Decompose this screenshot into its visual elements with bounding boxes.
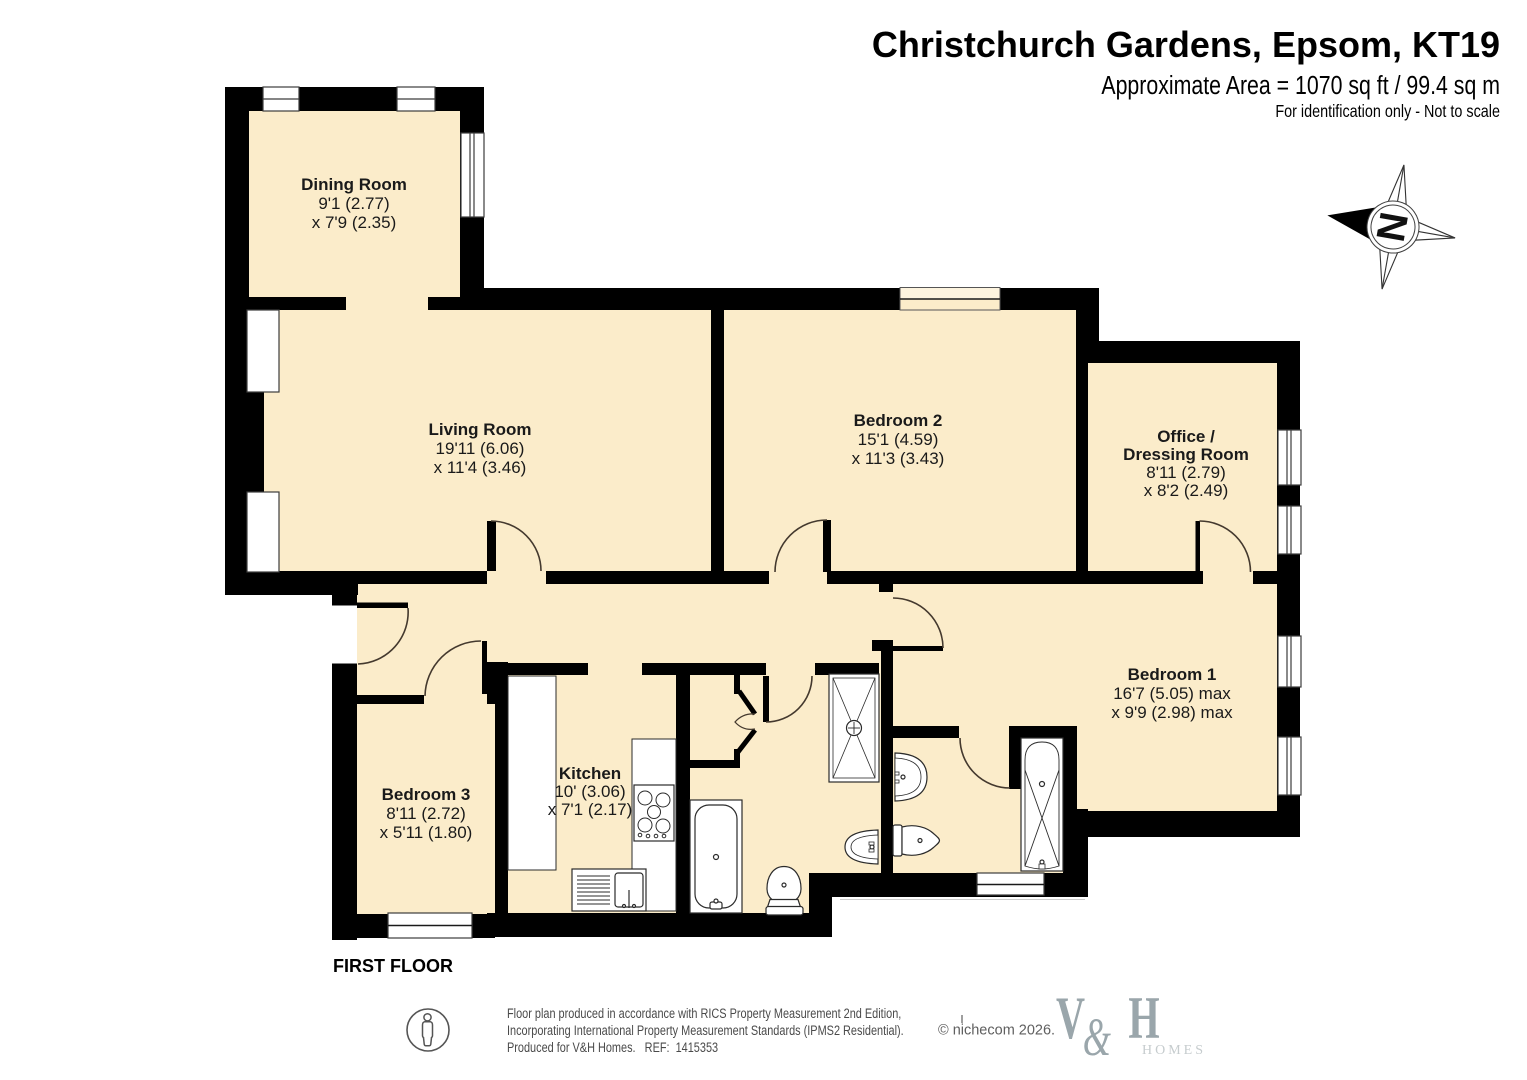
svg-text:Bedroom 3: Bedroom 3 — [382, 785, 471, 804]
svg-text:Bedroom 2: Bedroom 2 — [854, 411, 943, 430]
svg-text:Living Room: Living Room — [429, 420, 532, 439]
svg-text:Incorporating International Pr: Incorporating International Property Mea… — [507, 1023, 904, 1039]
svg-text:x 11'3 (3.43): x 11'3 (3.43) — [852, 449, 945, 468]
svg-text:Dining Room: Dining Room — [301, 175, 407, 194]
svg-text:x 8'2 (2.49): x 8'2 (2.49) — [1144, 481, 1229, 500]
svg-text:15'1 (4.59): 15'1 (4.59) — [858, 430, 939, 449]
svg-text:Christchurch Gardens, Epsom, K: Christchurch Gardens, Epsom, KT19 — [872, 24, 1500, 65]
svg-text:Approximate Area = 1070 sq ft: Approximate Area = 1070 sq ft / 99.4 sq … — [1101, 71, 1500, 101]
svg-text:FIRST FLOOR: FIRST FLOOR — [333, 956, 453, 976]
svg-text:9'1 (2.77): 9'1 (2.77) — [318, 194, 389, 213]
svg-text:Bedroom 1: Bedroom 1 — [1128, 665, 1217, 684]
svg-text:HOMES: HOMES — [1142, 1043, 1206, 1058]
svg-text:Dressing Room: Dressing Room — [1123, 445, 1249, 464]
svg-text:Floor plan produced in accorda: Floor plan produced in accordance with R… — [507, 1006, 901, 1022]
svg-text:x 7'1 (2.17): x 7'1 (2.17) — [548, 800, 633, 819]
svg-text:8'11 (2.72): 8'11 (2.72) — [386, 804, 465, 823]
svg-text:Kitchen: Kitchen — [559, 764, 621, 783]
svg-text:x 11'4 (3.46): x 11'4 (3.46) — [434, 458, 527, 477]
svg-text:x 7'9 (2.35): x 7'9 (2.35) — [312, 213, 397, 232]
svg-text:Produced for V&H Homes. REF:: Produced for V&H Homes. REF: 1415353 — [507, 1040, 718, 1056]
svg-text:x 5'11 (1.80): x 5'11 (1.80) — [380, 823, 473, 842]
svg-text:V: V — [1056, 985, 1085, 1052]
svg-text:&: & — [1083, 1007, 1111, 1067]
svg-text:x 9'9 (2.98) max: x 9'9 (2.98) max — [1111, 703, 1233, 722]
svg-text:10' (3.06): 10' (3.06) — [554, 782, 625, 801]
svg-text:19'11 (6.06): 19'11 (6.06) — [436, 439, 525, 458]
svg-text:Office /: Office / — [1157, 427, 1215, 446]
svg-text:© nichecom 2026.: © nichecom 2026. — [938, 1023, 1055, 1039]
svg-text:For identification only - Not: For identification only - Not to scale — [1275, 102, 1500, 122]
svg-text:8'11 (2.79): 8'11 (2.79) — [1146, 463, 1225, 482]
svg-text:16'7 (5.05) max: 16'7 (5.05) max — [1113, 684, 1231, 703]
